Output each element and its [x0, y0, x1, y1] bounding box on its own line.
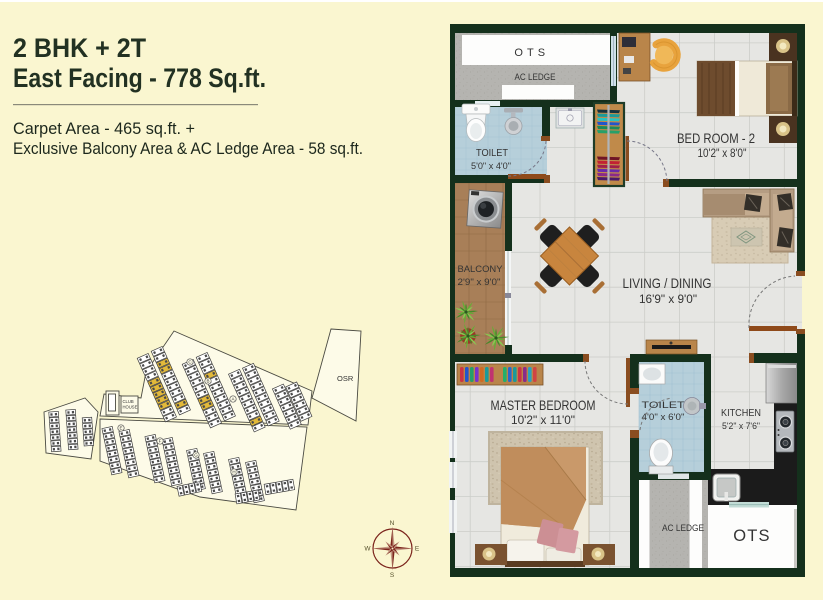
svg-text:H: H	[232, 470, 235, 475]
svg-text:10'2" x 8'0": 10'2" x 8'0"	[698, 148, 747, 160]
svg-text:Exclusive Balcony Area & AC Le: Exclusive Balcony Area & AC Ledge Area -…	[13, 139, 363, 158]
svg-text:S: S	[390, 572, 395, 579]
svg-text:O T S: O T S	[514, 47, 545, 59]
svg-text:B: B	[206, 379, 209, 384]
svg-text:E: E	[415, 546, 420, 553]
svg-text:10'2" x 11'0": 10'2" x 11'0"	[511, 413, 575, 427]
svg-text:2 BHK + 2T: 2 BHK + 2T	[13, 33, 146, 63]
svg-text:BALCONY: BALCONY	[458, 264, 503, 274]
svg-text:KITCHEN: KITCHEN	[721, 408, 761, 419]
svg-text:E: E	[119, 426, 122, 431]
svg-text:4'0" x 6'0": 4'0" x 6'0"	[642, 412, 685, 422]
svg-text:N: N	[390, 520, 395, 527]
svg-text:Carpet Area - 465 sq.ft. +: Carpet Area - 465 sq.ft. +	[13, 119, 195, 138]
svg-text:East Facing - 778 Sq.ft.: East Facing - 778 Sq.ft.	[13, 63, 266, 93]
svg-text:5'2" x 7'6": 5'2" x 7'6"	[722, 421, 760, 431]
svg-text:LIVING / DINING: LIVING / DINING	[623, 275, 712, 291]
svg-text:F: F	[159, 439, 162, 444]
svg-text:16'9" x 9'0": 16'9" x 9'0"	[639, 292, 697, 306]
svg-text:TOILET: TOILET	[642, 400, 686, 410]
svg-text:HOUSE: HOUSE	[123, 405, 138, 410]
svg-text:OTS: OTS	[733, 527, 771, 545]
svg-text:AC LEDGE: AC LEDGE	[515, 72, 556, 82]
svg-text:CLUB: CLUB	[123, 399, 134, 404]
svg-text:TOILET: TOILET	[476, 148, 508, 159]
svg-text:5'0" x 4'0": 5'0" x 4'0"	[471, 161, 511, 172]
svg-text:OSR: OSR	[337, 374, 354, 383]
svg-text:BED ROOM - 2: BED ROOM - 2	[677, 130, 755, 146]
svg-text:MASTER BEDROOM: MASTER BEDROOM	[491, 397, 596, 413]
svg-text:W: W	[364, 546, 371, 553]
svg-text:2'9" x 9'0": 2'9" x 9'0"	[458, 277, 501, 287]
svg-text:G: G	[194, 453, 198, 458]
svg-text:AC LEDGE: AC LEDGE	[662, 523, 704, 533]
svg-text:A: A	[231, 397, 234, 402]
